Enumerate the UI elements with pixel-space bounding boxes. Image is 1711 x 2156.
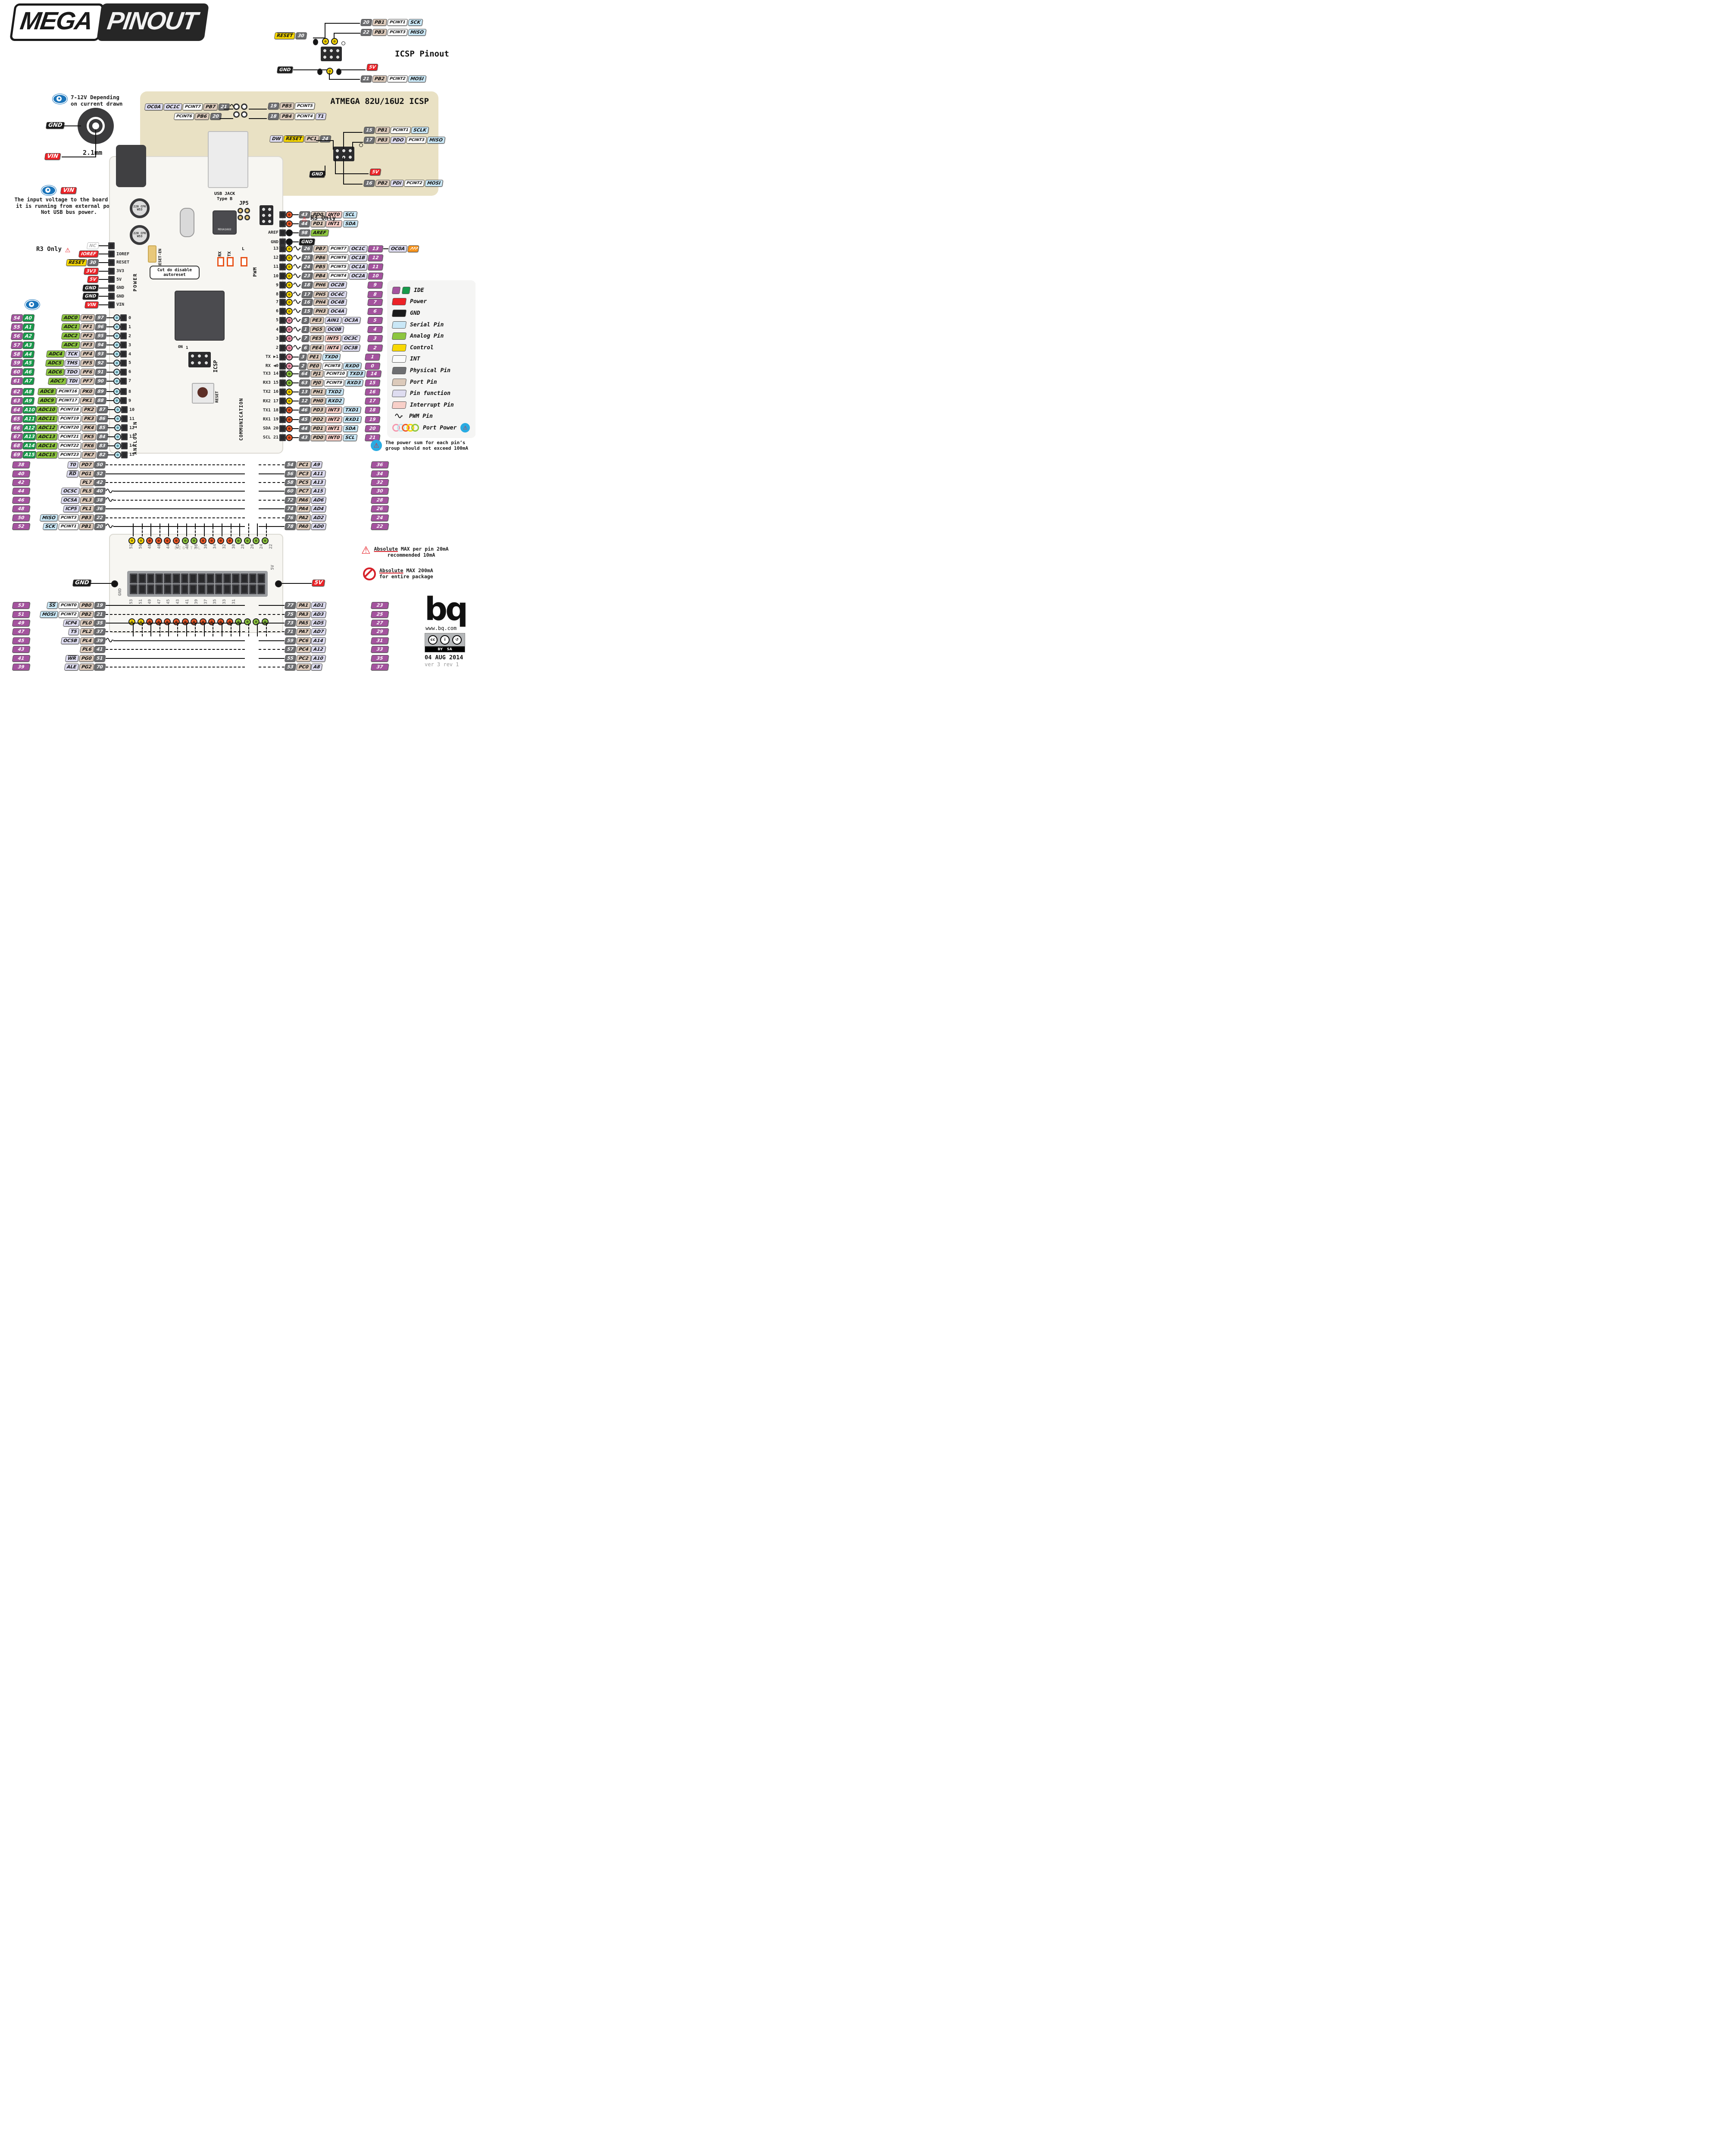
ide-number: 67 bbox=[11, 433, 23, 440]
board-silk-label: RESET bbox=[115, 260, 136, 265]
connector-pin-number: 36 bbox=[203, 544, 210, 563]
ide-pin-number: 19 bbox=[365, 416, 380, 423]
pin-row: 46OC5APL338 bbox=[12, 496, 245, 505]
chip-pg5: PG5 bbox=[310, 326, 325, 333]
abs2-l2: for entire package bbox=[379, 573, 433, 580]
chip-wr: WR bbox=[65, 655, 79, 662]
chip-30: 30 bbox=[87, 259, 99, 266]
pin-row: 77PA1AD123 bbox=[259, 601, 389, 610]
chip-pa4: PA4 bbox=[296, 505, 311, 512]
atmega16u2-chip: MEGA16U2 bbox=[213, 211, 236, 234]
chip-ph5: PH5 bbox=[313, 291, 328, 298]
chip-tms: TMS bbox=[64, 360, 80, 367]
lead-line bbox=[106, 326, 113, 327]
chip-55: 55 bbox=[285, 655, 296, 662]
chip-13: 13 bbox=[299, 389, 310, 395]
board-silk-label: RX2 17 bbox=[258, 399, 278, 404]
chip-41: 41 bbox=[94, 646, 106, 653]
legend-item-pwm: PWM Pin bbox=[392, 411, 471, 423]
lead-line bbox=[259, 614, 285, 615]
chip-43: 43 bbox=[299, 434, 310, 441]
lead-line bbox=[259, 464, 285, 465]
connector-pin-number: 46 bbox=[157, 544, 163, 563]
ide-number: 65 bbox=[11, 415, 23, 423]
pin-row: 63A9ADC9PCINT17PK1889 bbox=[11, 396, 138, 405]
ide-pin-number: 27 bbox=[371, 620, 389, 627]
chip-pcint6: PCINT6 bbox=[174, 113, 195, 120]
lead-line bbox=[106, 464, 245, 465]
ide-analog-name: A7 bbox=[22, 377, 34, 385]
abs2-rest: MAX 200mA bbox=[403, 567, 433, 573]
lead-line bbox=[108, 436, 114, 437]
ide-number: 60 bbox=[11, 368, 23, 376]
chip-3v3: 3V3 bbox=[84, 268, 99, 275]
pin-row: RESET30RESET bbox=[25, 258, 136, 267]
header-pad bbox=[206, 573, 214, 583]
pin-dot bbox=[286, 273, 293, 279]
chip-pcint7: PCINT7 bbox=[328, 245, 349, 252]
pin-row: NC bbox=[25, 241, 136, 250]
chip-mosi: MOSI bbox=[425, 180, 443, 187]
chip-pl5: PL5 bbox=[80, 488, 94, 495]
chip-pb2: PB2 bbox=[375, 180, 390, 187]
wire bbox=[248, 523, 249, 536]
chip-97: 97 bbox=[95, 314, 106, 321]
chip-26: 26 bbox=[301, 245, 313, 252]
lead-line bbox=[259, 649, 285, 650]
header-pad bbox=[108, 276, 115, 283]
lead-line bbox=[106, 482, 245, 483]
chip-pcint1: PCINT1 bbox=[387, 19, 408, 26]
wire bbox=[343, 132, 363, 133]
chip-90: 90 bbox=[95, 378, 106, 385]
right-rows-top: 43PD0INT0SCL44PD1INT1SDAAREF98AREFGNDGND bbox=[258, 210, 475, 247]
pin-row: 59A5ADC5TMSPF5925 bbox=[11, 358, 138, 367]
lead-line bbox=[293, 357, 299, 357]
chip-pc1: PC1 bbox=[304, 135, 319, 142]
chip-pc1: PC1 bbox=[296, 461, 311, 468]
wire bbox=[293, 69, 327, 70]
lead-line bbox=[108, 418, 114, 419]
header-pad bbox=[121, 406, 128, 413]
wire bbox=[62, 157, 96, 157]
tx-led bbox=[227, 257, 234, 266]
pwm-silk: PWM bbox=[252, 251, 258, 277]
eye-icon bbox=[53, 94, 67, 104]
legend-item-control: Control bbox=[392, 342, 471, 354]
chip-54: 54 bbox=[285, 461, 296, 468]
chip-scl: SCL bbox=[342, 211, 357, 218]
chip-pcint4: PCINT4 bbox=[294, 113, 316, 120]
pin-row: 53PC0A837 bbox=[259, 663, 389, 671]
pin-row: 71PA7AD729 bbox=[259, 627, 389, 636]
chip-pcint18: PCINT18 bbox=[58, 406, 81, 413]
header-pad bbox=[215, 584, 223, 594]
chip-44: 44 bbox=[299, 425, 310, 432]
chip-pcint2: PCINT2 bbox=[58, 611, 79, 618]
chip-pk4: PK4 bbox=[81, 424, 97, 431]
header-pad bbox=[108, 259, 115, 266]
pin-row: 57A3ADC3PF3943 bbox=[11, 341, 138, 350]
wire bbox=[266, 523, 267, 536]
lead-line bbox=[293, 437, 299, 438]
header-pad bbox=[279, 220, 286, 227]
chip-pb7: PB7 bbox=[203, 103, 218, 110]
chip-adc10: ADC10 bbox=[36, 406, 58, 413]
ide-pin-number: 13 bbox=[368, 245, 383, 252]
chip-pcint16: PCINT16 bbox=[56, 388, 80, 395]
header-pad bbox=[120, 323, 127, 330]
legend-item-gnd: GND bbox=[392, 307, 471, 319]
usb-jack-label: USB JACK Type B bbox=[214, 191, 235, 202]
power-jack-body bbox=[116, 145, 146, 187]
lead-line bbox=[108, 427, 114, 428]
chip-oc1c: OC1C bbox=[163, 103, 182, 110]
wire bbox=[177, 523, 178, 536]
power-sum-l2: group should not exceed 100mA bbox=[385, 445, 468, 451]
ide-pin-number: 41 bbox=[12, 655, 30, 662]
ide-pin-number: 36 bbox=[371, 461, 389, 468]
pin-row: 48ICP5PL136 bbox=[12, 505, 245, 513]
ide-pin-number: 3 bbox=[367, 335, 383, 342]
header-pad bbox=[120, 351, 127, 357]
icsp-pads bbox=[233, 103, 247, 118]
chip-oc4b: OC4B bbox=[328, 299, 347, 306]
wire bbox=[133, 523, 134, 536]
lead-line bbox=[293, 382, 299, 383]
header-pad bbox=[121, 451, 128, 458]
legend-item-intpin: Interrupt Pin bbox=[392, 399, 471, 411]
chip-rxd1: RXD1 bbox=[342, 416, 361, 423]
mid-left-table: 38T0PD75040RDPG15242PL74244OC5CPL54046OC… bbox=[12, 461, 245, 531]
warning-triangle-icon: ⚠ bbox=[302, 214, 307, 222]
pin-row: RESET30 bbox=[274, 32, 307, 39]
chip-35: 35 bbox=[94, 620, 106, 627]
chip-pl1: PL1 bbox=[80, 505, 94, 512]
pin-dot bbox=[286, 345, 293, 351]
chip-a8: A8 bbox=[311, 664, 323, 671]
ide-pin-number: 10 bbox=[368, 273, 383, 279]
header-pad bbox=[147, 573, 155, 583]
chip-oc3c: OC3C bbox=[341, 335, 360, 342]
legend-label: GND bbox=[410, 310, 420, 317]
connector-pin-number: 42 bbox=[175, 544, 182, 563]
chip-adc0: ADC0 bbox=[61, 314, 80, 321]
chip-sck: SCK bbox=[408, 19, 423, 26]
pin-dot bbox=[275, 580, 282, 587]
chip-oc4a: OC4A bbox=[328, 308, 347, 315]
connector-pin-number: 28 bbox=[241, 544, 247, 563]
header-pad bbox=[147, 584, 155, 594]
lead-line bbox=[113, 640, 245, 641]
legend-swatch bbox=[392, 355, 407, 363]
header-pad bbox=[257, 584, 265, 594]
vin-note-head: VIN bbox=[41, 185, 77, 195]
header-pad bbox=[121, 442, 128, 449]
chip-5v: 5V bbox=[87, 276, 99, 283]
lead-line bbox=[259, 667, 285, 667]
chip-pcint10: PCINT10 bbox=[323, 370, 347, 377]
board-silk-label: 8 bbox=[127, 389, 138, 394]
board-silk-label: GND bbox=[258, 240, 278, 244]
by-icon: i bbox=[440, 635, 450, 645]
wire bbox=[249, 118, 267, 119]
ide-number: 69 bbox=[11, 451, 23, 458]
chip-pl7: PL7 bbox=[80, 479, 94, 486]
chip-59: 59 bbox=[285, 637, 296, 644]
board-silk-label: 7 bbox=[127, 379, 138, 383]
chip-98: 98 bbox=[299, 229, 310, 236]
board-silk-label: 6 bbox=[258, 309, 278, 313]
chip-adc12: ADC12 bbox=[36, 424, 58, 431]
pin-row: 64A10ADC10PCINT18PK28710 bbox=[11, 405, 138, 414]
pin-row: 58PC5A1332 bbox=[259, 478, 389, 487]
legend-swatch bbox=[392, 332, 407, 340]
icsp-pinout-title: ICSP Pinout bbox=[395, 49, 449, 59]
chip-17: 17 bbox=[363, 137, 375, 144]
chip-pc4: PC4 bbox=[296, 646, 311, 653]
chip-gnd: GND bbox=[82, 293, 99, 300]
chip-89: 89 bbox=[95, 388, 106, 395]
abs1-word: Absolute bbox=[374, 546, 398, 552]
warning-circle-icon: ⚠ bbox=[371, 440, 382, 451]
header-pad bbox=[279, 434, 286, 441]
pin-row: 56PC3A1134 bbox=[259, 469, 389, 478]
chip-t1: T1 bbox=[315, 113, 327, 120]
chip-label: MEGA16U2 bbox=[218, 228, 231, 231]
chip-56: 56 bbox=[285, 470, 296, 477]
header-pad bbox=[189, 584, 197, 594]
legend-swatch bbox=[392, 401, 407, 409]
power-sum-l1: The power sum for each pin’s bbox=[385, 440, 468, 445]
pin-row: 55A1ADC1PF1961 bbox=[11, 323, 138, 332]
ide-pin-number: 0 bbox=[365, 363, 380, 370]
abs1-l2: recommended 10mA bbox=[374, 552, 449, 558]
r3-only-right: ⚠R3 Only bbox=[302, 214, 336, 222]
chip-miso: MISO bbox=[408, 29, 426, 36]
chip-pf4: PF4 bbox=[80, 351, 95, 357]
chip-50: 50 bbox=[94, 461, 106, 468]
header-pad bbox=[121, 424, 128, 431]
pin-dot bbox=[113, 342, 120, 348]
legend-swatch bbox=[392, 298, 407, 305]
chip-pb6: PB6 bbox=[194, 113, 210, 120]
lead-line bbox=[113, 500, 245, 501]
chip-adc7: ADC7 bbox=[47, 378, 66, 385]
chip-miso: MISO bbox=[427, 137, 445, 144]
chip-pk3: PK3 bbox=[81, 415, 97, 422]
chip-rxd3: RXD3 bbox=[344, 379, 363, 386]
chip-oc2a: OC2A bbox=[349, 273, 368, 279]
legend-label: Analog Pin bbox=[410, 333, 444, 339]
ide-number: 61 bbox=[11, 377, 23, 385]
pin-dot bbox=[286, 389, 293, 395]
chip-a10: A10 bbox=[311, 655, 326, 662]
chip-adc2: ADC2 bbox=[61, 332, 80, 339]
chip-pb3: PB3 bbox=[372, 29, 387, 36]
chip-19: 19 bbox=[94, 602, 106, 609]
pin-row: GND bbox=[309, 171, 325, 178]
header-pad bbox=[130, 573, 138, 583]
board-silk-label: 3 bbox=[258, 336, 278, 341]
chip-pe1: PE1 bbox=[307, 354, 322, 360]
pin-row: 50MISOPCINT3PB322 bbox=[12, 513, 245, 522]
wire bbox=[219, 118, 233, 119]
pin-dot bbox=[286, 211, 293, 218]
board-silk-label: 12 bbox=[128, 426, 138, 430]
pin-dot bbox=[286, 434, 293, 441]
warning-triangle-icon: ⚠ bbox=[361, 546, 371, 555]
connector-pin-number: 34 bbox=[213, 544, 219, 563]
legend-label: INT bbox=[410, 356, 420, 362]
wire bbox=[340, 69, 366, 70]
pin-row: 22PB3PCINT3MISO bbox=[360, 29, 426, 36]
chip-pl6: PL6 bbox=[80, 646, 94, 653]
chip-18: 18 bbox=[301, 282, 313, 288]
pin-row: 72PA6AD628 bbox=[259, 496, 389, 505]
ide-pin-number: 1 bbox=[365, 354, 380, 360]
ide-pin-number: 45 bbox=[12, 637, 30, 644]
chip-pl4: PL4 bbox=[80, 637, 94, 644]
legend-swatch bbox=[392, 344, 407, 351]
chip-pk6: PK6 bbox=[81, 442, 97, 449]
chip-pcint3: PCINT3 bbox=[58, 514, 79, 521]
connector-pin-number: 48 bbox=[147, 544, 154, 563]
lead-line bbox=[106, 354, 113, 354]
atmega2560-chip bbox=[175, 291, 224, 340]
lead-line bbox=[99, 288, 108, 288]
ide-pin-number: 20 bbox=[365, 425, 380, 432]
chip-5: 5 bbox=[301, 317, 310, 324]
lead-line bbox=[106, 473, 245, 474]
r3-only-text: R3 Only bbox=[310, 215, 336, 222]
header-pad bbox=[121, 433, 128, 440]
chip-pd7: PD7 bbox=[79, 461, 94, 468]
chip-pb2: PB2 bbox=[79, 611, 94, 618]
pin-dot bbox=[113, 369, 120, 376]
ide-number: 56 bbox=[11, 332, 23, 340]
pin-row: 56A2ADC2PF2952 bbox=[11, 332, 138, 341]
legend-label: Control bbox=[410, 345, 434, 351]
pin-row: 38T0PD750 bbox=[12, 461, 245, 469]
lead-line bbox=[106, 363, 113, 364]
header-pad bbox=[223, 584, 231, 594]
board-silk-label: 11 bbox=[258, 264, 278, 269]
chip-oc1a: OC1A bbox=[349, 263, 368, 270]
header-pad bbox=[108, 242, 115, 249]
wire bbox=[150, 523, 151, 536]
wire bbox=[213, 523, 213, 536]
abs1-rest: MAX per pin 20mA bbox=[398, 546, 449, 552]
ide-pin-number: 12 bbox=[368, 254, 383, 261]
header-pad bbox=[257, 573, 265, 583]
icsp-header-icon bbox=[321, 47, 342, 61]
chip-pf0: PF0 bbox=[80, 314, 95, 321]
chip-pcint1: PCINT1 bbox=[58, 523, 79, 530]
header-pad bbox=[279, 416, 286, 423]
chip-sck: SCK bbox=[43, 523, 58, 530]
icsp-pad bbox=[322, 38, 329, 45]
chip-pcint19: PCINT19 bbox=[58, 415, 81, 422]
header-pad bbox=[155, 573, 163, 583]
ide-analog-name: A2 bbox=[22, 332, 34, 340]
pin-row: 59PC6A1431 bbox=[259, 636, 389, 645]
board-silk-label: 13 bbox=[258, 246, 278, 251]
chip-ad4: AD4 bbox=[311, 505, 326, 512]
chip-pb1: PB1 bbox=[372, 19, 387, 26]
pin-dot bbox=[114, 451, 121, 458]
ide-pin-number: 31 bbox=[371, 637, 389, 644]
header-pad bbox=[223, 573, 231, 583]
pin-row: 61A7ADC7TDIPF7907 bbox=[11, 376, 138, 385]
chip-87: 87 bbox=[97, 406, 108, 413]
icsp-header bbox=[188, 352, 211, 367]
chip-icp5: ICP5 bbox=[63, 505, 80, 512]
chip-pb6: PB6 bbox=[313, 254, 328, 261]
ide-pin-number: 50 bbox=[12, 514, 30, 521]
branding: bq www.bq.com cc i ↺ BYSA 04 AUG 2014 ve… bbox=[425, 594, 473, 667]
chip-adc3: ADC3 bbox=[61, 342, 80, 348]
chip-39: 39 bbox=[94, 637, 106, 644]
pin-row: 54PC1A936 bbox=[259, 461, 389, 469]
pin-row: 41WRPG051 bbox=[12, 654, 245, 662]
connector-pin-number: 24 bbox=[259, 544, 266, 563]
pin-dot bbox=[208, 537, 215, 544]
wire bbox=[249, 109, 267, 110]
header-pad bbox=[198, 584, 206, 594]
pin-dot bbox=[286, 282, 293, 288]
ide-pin-number: 24 bbox=[371, 514, 389, 521]
ide-pin-number: 22 bbox=[371, 523, 389, 530]
board-silk-label: 2 bbox=[127, 334, 138, 338]
chip-adc9: ADC9 bbox=[38, 397, 56, 404]
board-silk-label: 10 bbox=[258, 274, 278, 279]
ide-pin-number: 52 bbox=[12, 523, 30, 530]
ide-number: 63 bbox=[11, 397, 23, 404]
chip-txd0: TXD0 bbox=[322, 354, 341, 360]
jp5-pads bbox=[238, 208, 250, 220]
ide-pin-number: 30 bbox=[371, 488, 389, 495]
lead-line bbox=[259, 526, 285, 527]
lead-line bbox=[106, 631, 245, 632]
chip-60: 60 bbox=[285, 488, 296, 495]
board-silk-label: 5 bbox=[258, 318, 278, 323]
chip-pe3: PE3 bbox=[310, 317, 324, 324]
wire bbox=[195, 523, 196, 536]
pin-row: GNDGND bbox=[25, 284, 136, 292]
ide-analog-name: A6 bbox=[22, 368, 34, 376]
pin-dot bbox=[114, 433, 121, 440]
chip-gnd: GND bbox=[309, 171, 325, 178]
ide-pin-number: 15 bbox=[365, 379, 380, 386]
header-pad bbox=[279, 354, 286, 360]
chip-pcint0: PCINT0 bbox=[58, 602, 79, 609]
pin-row: VINVIN bbox=[25, 301, 136, 309]
pin-dot bbox=[286, 425, 293, 432]
chip-int0: INT0 bbox=[325, 434, 342, 441]
header-pad bbox=[279, 211, 286, 218]
lead-line bbox=[108, 445, 114, 446]
lead-line bbox=[293, 214, 299, 215]
lead-line bbox=[106, 372, 113, 373]
pin-dot bbox=[164, 537, 171, 544]
chip-int3: INT3 bbox=[325, 407, 342, 414]
bq-logo: bq bbox=[425, 594, 473, 624]
lead-line bbox=[106, 649, 245, 650]
chip-pk1: PK1 bbox=[80, 397, 95, 404]
chip-74: 74 bbox=[285, 505, 296, 512]
lead-line bbox=[99, 304, 108, 305]
